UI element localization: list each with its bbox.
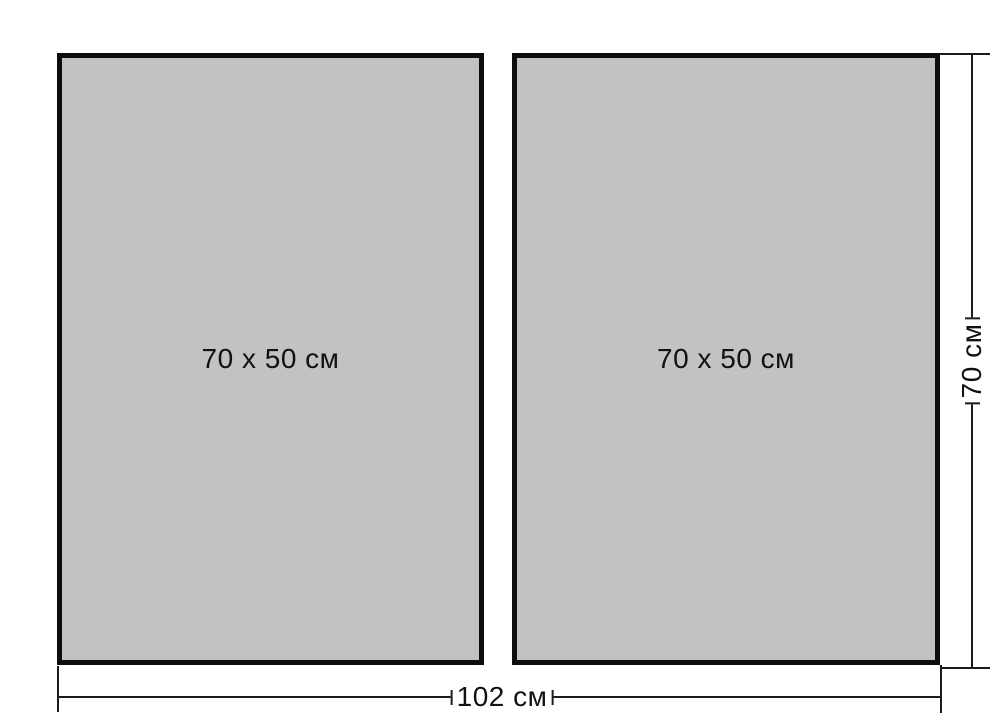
panel-right-size-label: 70 x 50 см <box>657 343 795 375</box>
width-dimension-tick-right <box>940 665 942 713</box>
width-dimension-label: 102 см <box>451 680 554 714</box>
panel-right: 70 x 50 см <box>512 53 940 665</box>
width-dimension-tick-left <box>57 666 59 712</box>
dimensions-diagram: 70 x 50 см 70 x 50 см 102 см 70 см <box>0 0 1000 726</box>
height-dimension-tick-bottom <box>941 667 990 669</box>
height-dimension-tick-top <box>940 53 990 55</box>
panel-left-size-label: 70 x 50 см <box>202 343 340 375</box>
panel-left: 70 x 50 см <box>57 53 484 665</box>
height-dimension-label: 70 см <box>955 318 989 405</box>
